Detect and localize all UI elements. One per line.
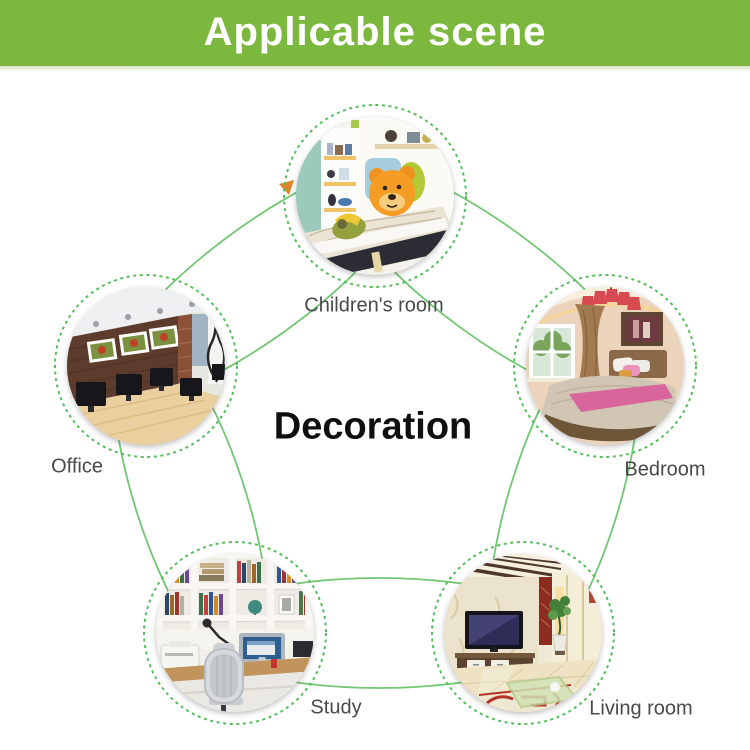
- label-study: Study: [310, 697, 361, 720]
- scene-node-bedroom: [510, 271, 700, 461]
- bedroom-photo: [510, 271, 700, 461]
- label-children-room: Children's room: [304, 295, 443, 318]
- label-living-room: Living room: [589, 698, 692, 721]
- scene-node-office: [51, 271, 241, 461]
- label-bedroom: Bedroom: [624, 459, 705, 482]
- scene-node-children-room: [280, 101, 470, 291]
- study-photo: [140, 538, 330, 728]
- page: Applicable scene: [0, 0, 750, 750]
- scene-node-study: [140, 538, 330, 728]
- label-office: Office: [51, 456, 103, 479]
- center-title: Decoration: [274, 406, 472, 449]
- children-room-photo: [280, 101, 470, 291]
- office-photo: [51, 271, 241, 461]
